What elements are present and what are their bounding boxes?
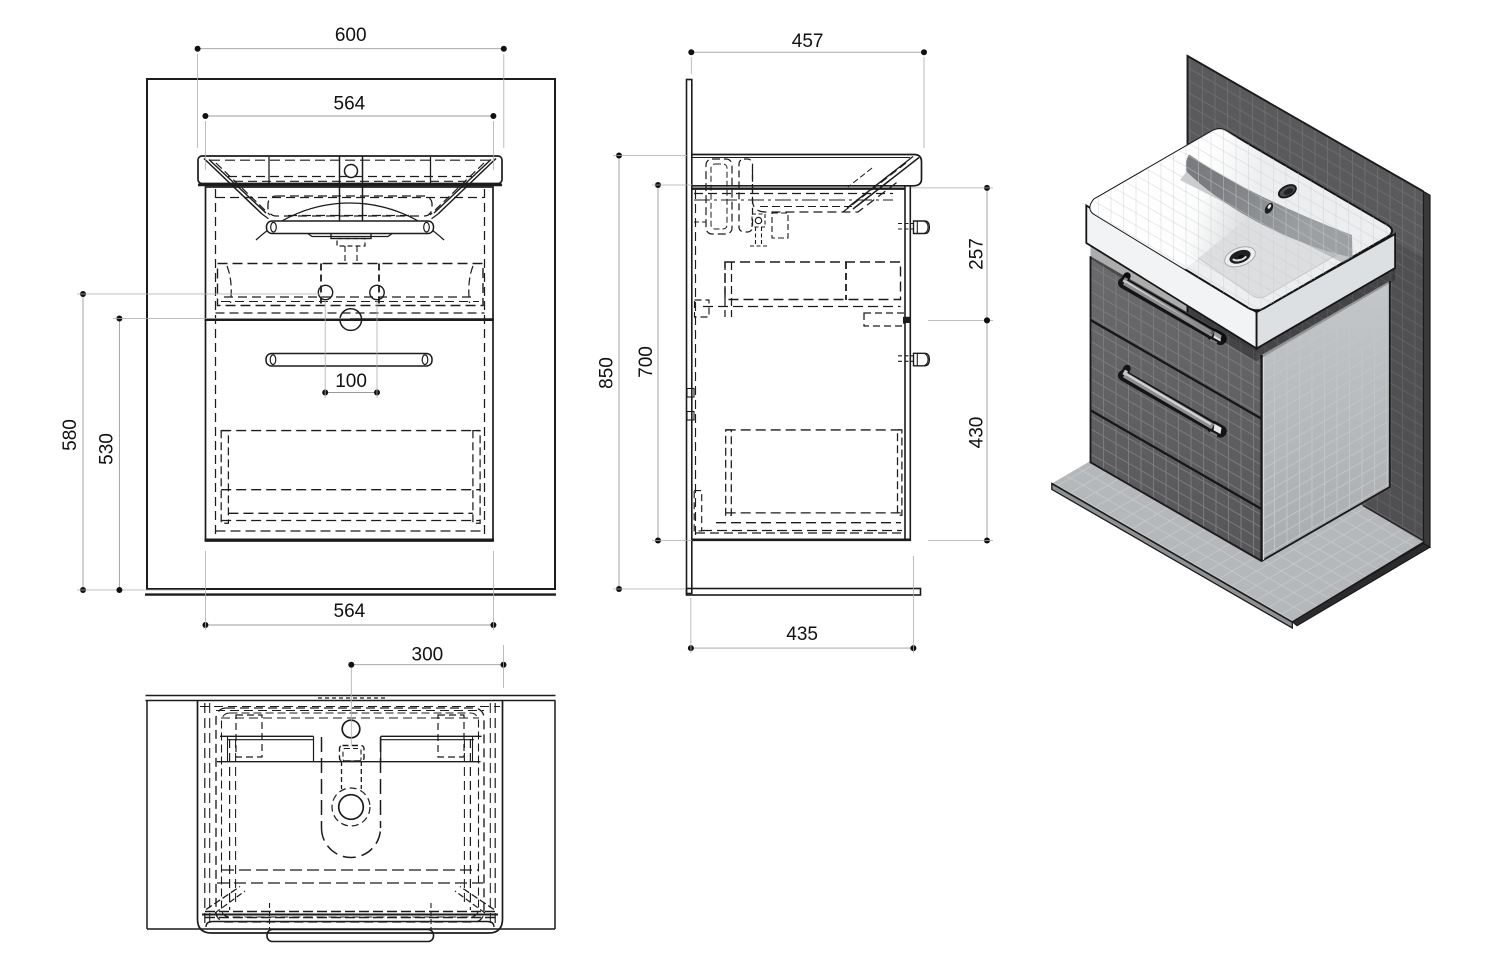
svg-text:435: 435 [786,624,818,645]
svg-text:850: 850 [597,357,618,389]
svg-text:430: 430 [967,417,988,449]
svg-text:300: 300 [412,645,444,666]
svg-text:600: 600 [335,25,367,46]
svg-text:564: 564 [334,94,366,115]
svg-text:457: 457 [792,31,824,52]
svg-text:564: 564 [334,601,366,622]
svg-text:530: 530 [97,433,118,465]
svg-text:580: 580 [60,419,81,451]
svg-text:700: 700 [636,346,657,378]
svg-text:100: 100 [335,371,367,392]
svg-text:257: 257 [967,238,988,270]
